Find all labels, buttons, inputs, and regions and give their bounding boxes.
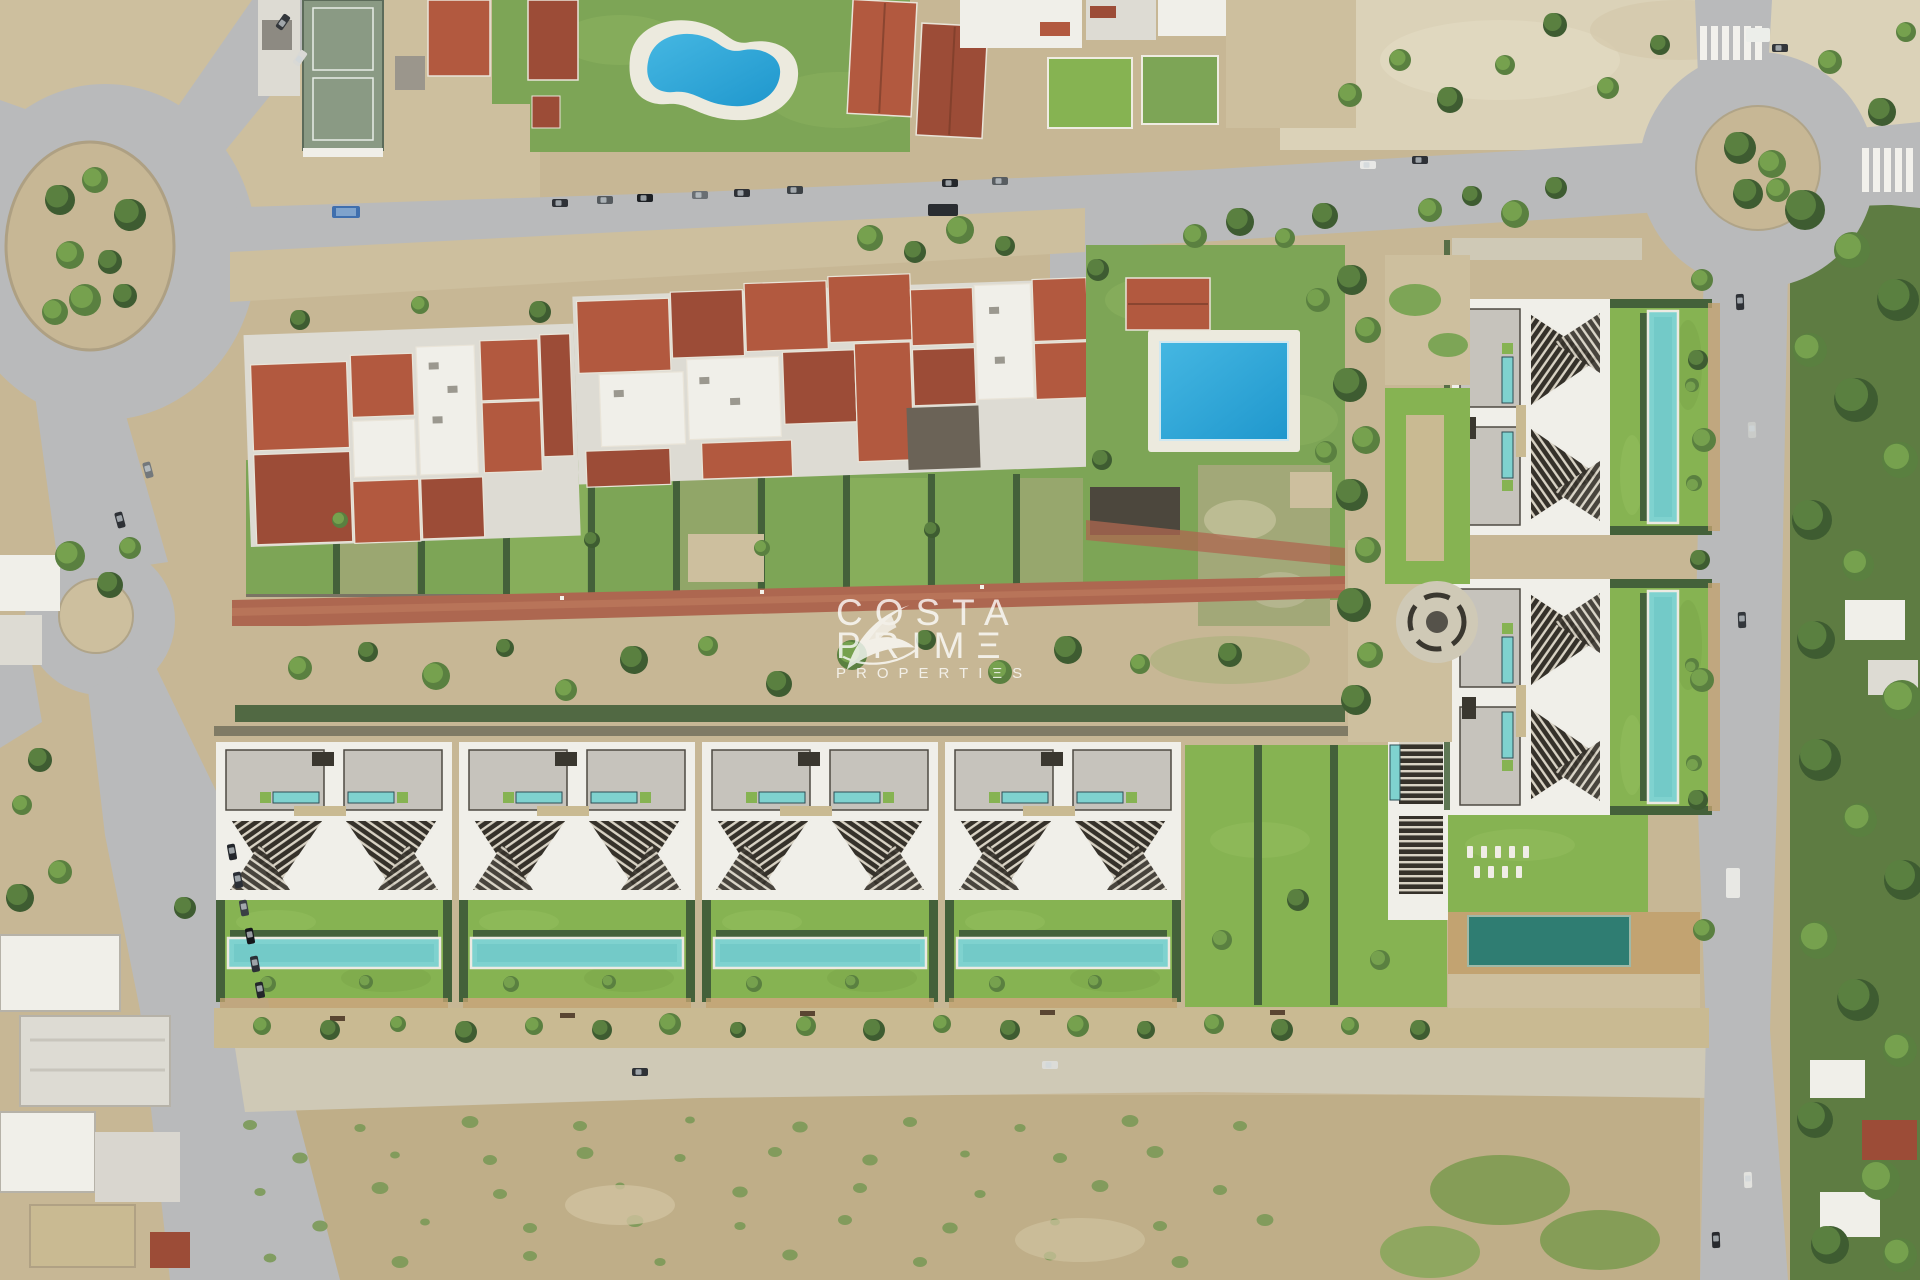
- garden-patio: [688, 534, 764, 582]
- villa-block: [216, 742, 452, 1010]
- villa-block: [459, 742, 695, 1010]
- dark-courtyard: [906, 405, 980, 469]
- white-building: [0, 555, 60, 611]
- field-patio: [1290, 472, 1332, 508]
- communal-pool: [1468, 916, 1630, 966]
- promenade-strip: [214, 1008, 1709, 1048]
- villa-block: [1452, 579, 1720, 815]
- tennis-court: [303, 0, 383, 150]
- dirt-patch: [1385, 255, 1470, 385]
- right-villa-column: [1444, 238, 1720, 815]
- villa-block: [945, 742, 1181, 1010]
- villa-block: [1452, 299, 1720, 535]
- white-van: [1746, 28, 1770, 42]
- gravel-bed: [1406, 415, 1444, 561]
- boundary-hedge: [235, 705, 1345, 722]
- dirt-band: [214, 626, 1454, 736]
- north-lawn: [1048, 58, 1132, 128]
- rectangular-public-pool: [1160, 342, 1288, 440]
- red-roof-house: [428, 0, 490, 76]
- aerial-scene-svg: [0, 0, 1920, 1280]
- warehouse: [20, 1016, 170, 1106]
- tan-roof-building: [30, 1205, 135, 1267]
- aerial-photo: COSTA PRIMΞ PROPERTIΞS: [0, 0, 1920, 1280]
- villa-row: [216, 705, 1454, 1010]
- villa-block: [702, 742, 938, 1010]
- communal-lawn: [1448, 815, 1648, 915]
- truck: [928, 204, 958, 216]
- central-pool-garden: [1086, 245, 1345, 633]
- white-truck: [1726, 868, 1740, 898]
